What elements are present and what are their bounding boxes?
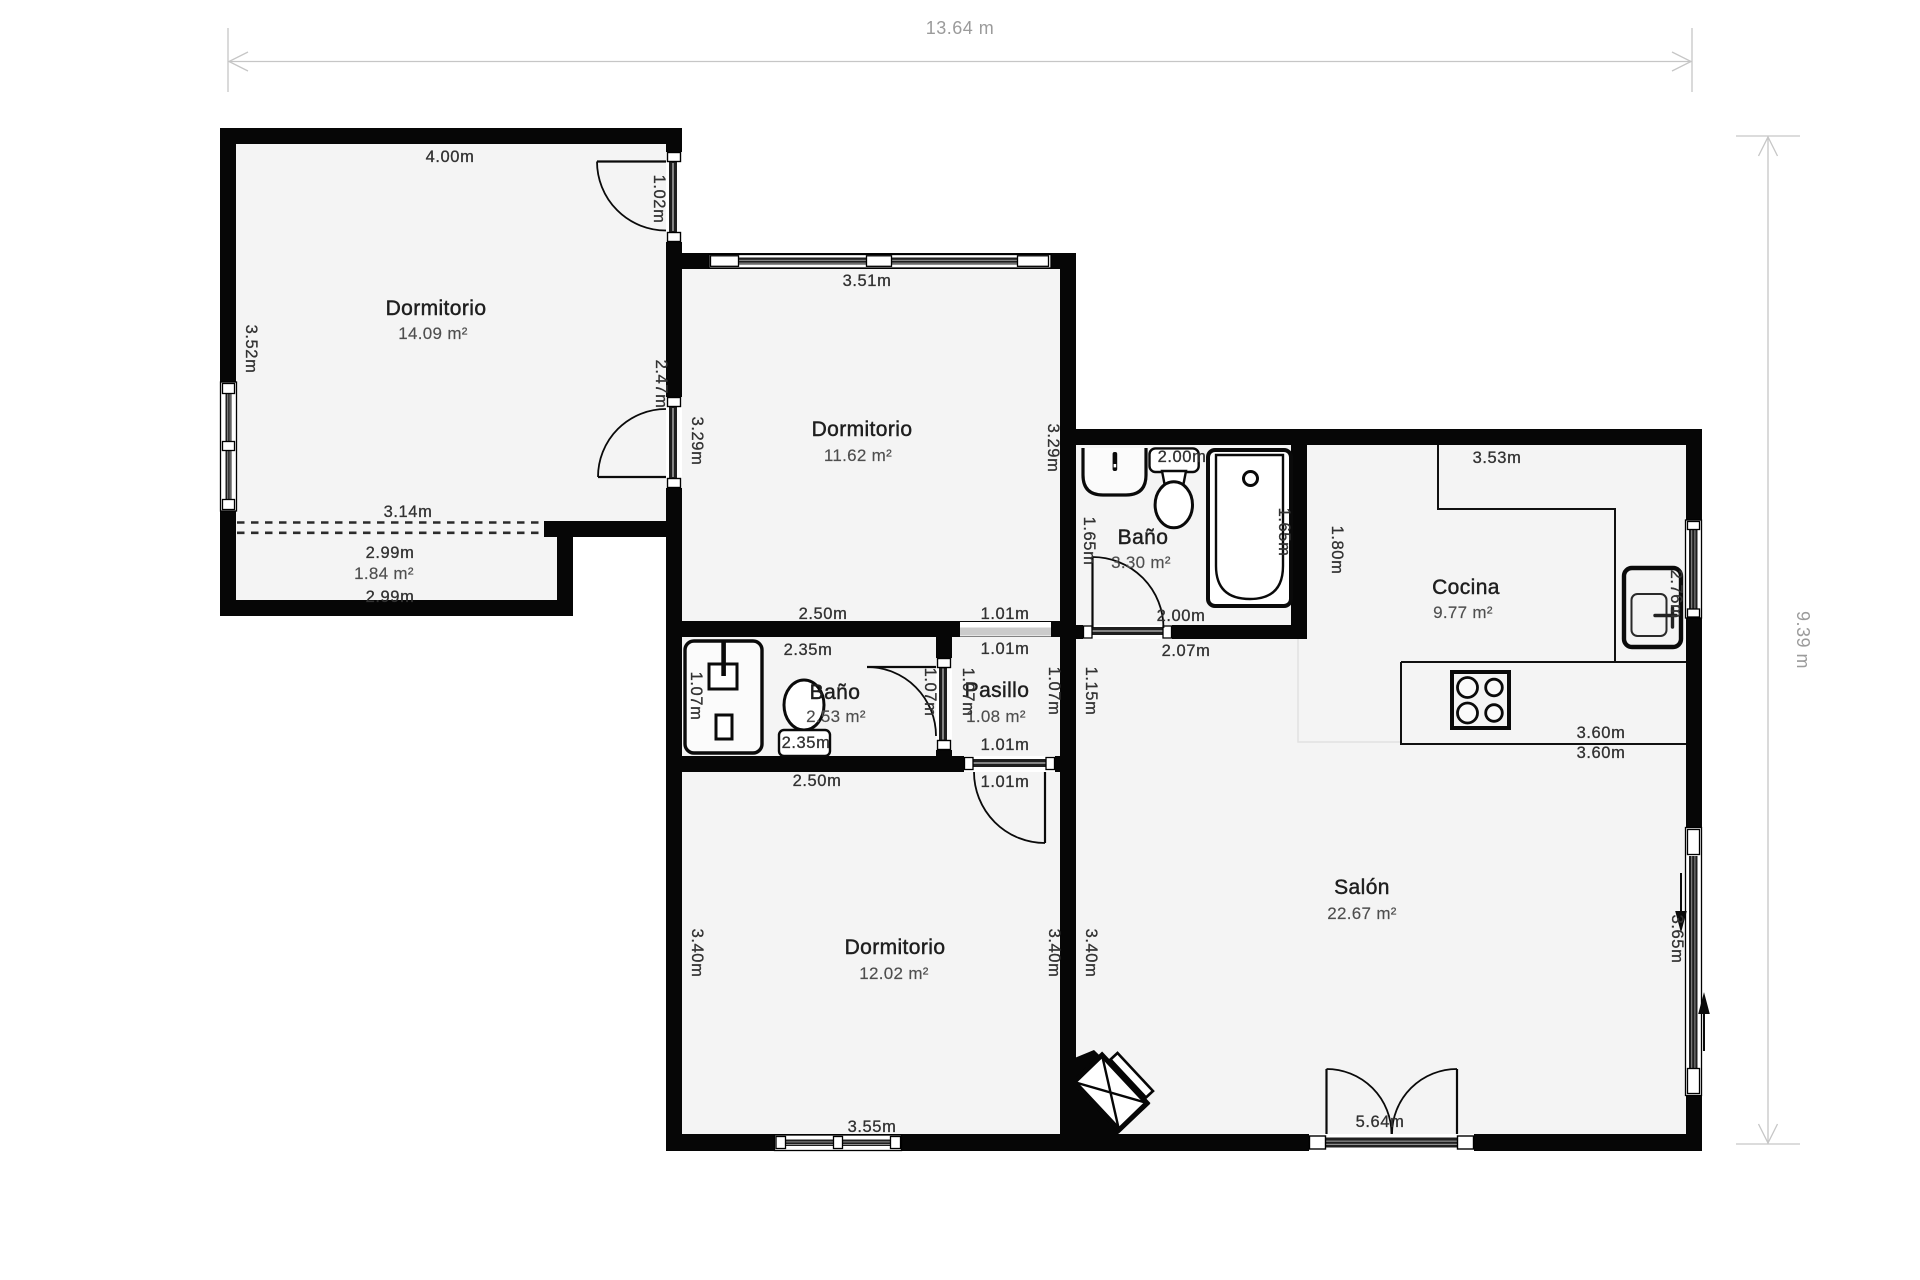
- svg-text:2.00m: 2.00m: [1158, 448, 1207, 466]
- svg-text:1.65m: 1.65m: [1275, 508, 1293, 557]
- svg-text:9.77 m²: 9.77 m²: [1433, 603, 1493, 622]
- svg-text:3.65m: 3.65m: [1668, 915, 1686, 964]
- svg-text:3.30 m²: 3.30 m²: [1111, 553, 1171, 572]
- svg-text:2.99m: 2.99m: [366, 544, 415, 562]
- svg-text:2.99m: 2.99m: [366, 588, 415, 606]
- svg-text:2.35m: 2.35m: [784, 641, 833, 659]
- svg-text:3.53m: 3.53m: [1473, 449, 1522, 467]
- svg-text:1.65m: 1.65m: [1080, 517, 1098, 566]
- svg-text:3.60m: 3.60m: [1577, 744, 1626, 762]
- svg-text:3.60m: 3.60m: [1577, 724, 1626, 742]
- svg-text:2.53 m²: 2.53 m²: [806, 707, 866, 726]
- svg-text:9.39 m: 9.39 m: [1793, 611, 1813, 669]
- svg-text:Dormitorio: Dormitorio: [845, 936, 946, 959]
- svg-text:5.64m: 5.64m: [1356, 1113, 1405, 1131]
- svg-text:Baño: Baño: [810, 681, 861, 704]
- svg-text:4.00m: 4.00m: [426, 148, 475, 166]
- svg-text:1.01m: 1.01m: [981, 736, 1030, 754]
- svg-text:2.76m: 2.76m: [1667, 570, 1685, 619]
- svg-text:1.07m: 1.07m: [921, 668, 939, 717]
- svg-text:1.80m: 1.80m: [1328, 526, 1346, 575]
- svg-text:22.67 m²: 22.67 m²: [1327, 904, 1397, 923]
- svg-text:1.15m: 1.15m: [1082, 667, 1100, 716]
- svg-text:2.00m: 2.00m: [1157, 607, 1206, 625]
- svg-text:3.51m: 3.51m: [843, 272, 892, 290]
- svg-text:3.40m: 3.40m: [688, 929, 706, 978]
- svg-text:2.07m: 2.07m: [1162, 642, 1211, 660]
- svg-text:1.02m: 1.02m: [650, 175, 668, 224]
- svg-text:Dormitorio: Dormitorio: [812, 418, 913, 441]
- svg-text:1.01m: 1.01m: [981, 773, 1030, 791]
- svg-text:Cocina: Cocina: [1432, 576, 1500, 599]
- svg-text:1.84 m²: 1.84 m²: [354, 564, 414, 583]
- svg-text:3.14m: 3.14m: [384, 503, 433, 521]
- svg-text:2.50m: 2.50m: [799, 605, 848, 623]
- svg-text:3.52m: 3.52m: [242, 325, 260, 374]
- svg-text:3.29m: 3.29m: [688, 417, 706, 466]
- svg-text:12.02 m²: 12.02 m²: [859, 964, 929, 983]
- svg-text:2.47m: 2.47m: [652, 360, 670, 409]
- svg-text:11.62 m²: 11.62 m²: [824, 446, 892, 465]
- svg-text:1.01m: 1.01m: [981, 605, 1030, 623]
- svg-text:3.40m: 3.40m: [1045, 929, 1063, 978]
- svg-text:Salón: Salón: [1334, 876, 1390, 899]
- svg-text:3.55m: 3.55m: [848, 1118, 897, 1136]
- svg-text:Baño: Baño: [1118, 526, 1169, 549]
- svg-text:1.07m: 1.07m: [1045, 667, 1063, 716]
- svg-text:3.29m: 3.29m: [1044, 424, 1062, 473]
- svg-text:Dormitorio: Dormitorio: [386, 297, 487, 320]
- svg-text:14.09 m²: 14.09 m²: [398, 324, 468, 343]
- svg-text:13.64 m: 13.64 m: [926, 18, 995, 38]
- svg-text:2.50m: 2.50m: [793, 772, 842, 790]
- svg-text:1.01m: 1.01m: [981, 640, 1030, 658]
- svg-text:1.07m: 1.07m: [959, 668, 977, 717]
- svg-text:1.07m: 1.07m: [687, 672, 705, 721]
- svg-text:2.35m: 2.35m: [782, 734, 831, 752]
- svg-text:3.40m: 3.40m: [1082, 929, 1100, 978]
